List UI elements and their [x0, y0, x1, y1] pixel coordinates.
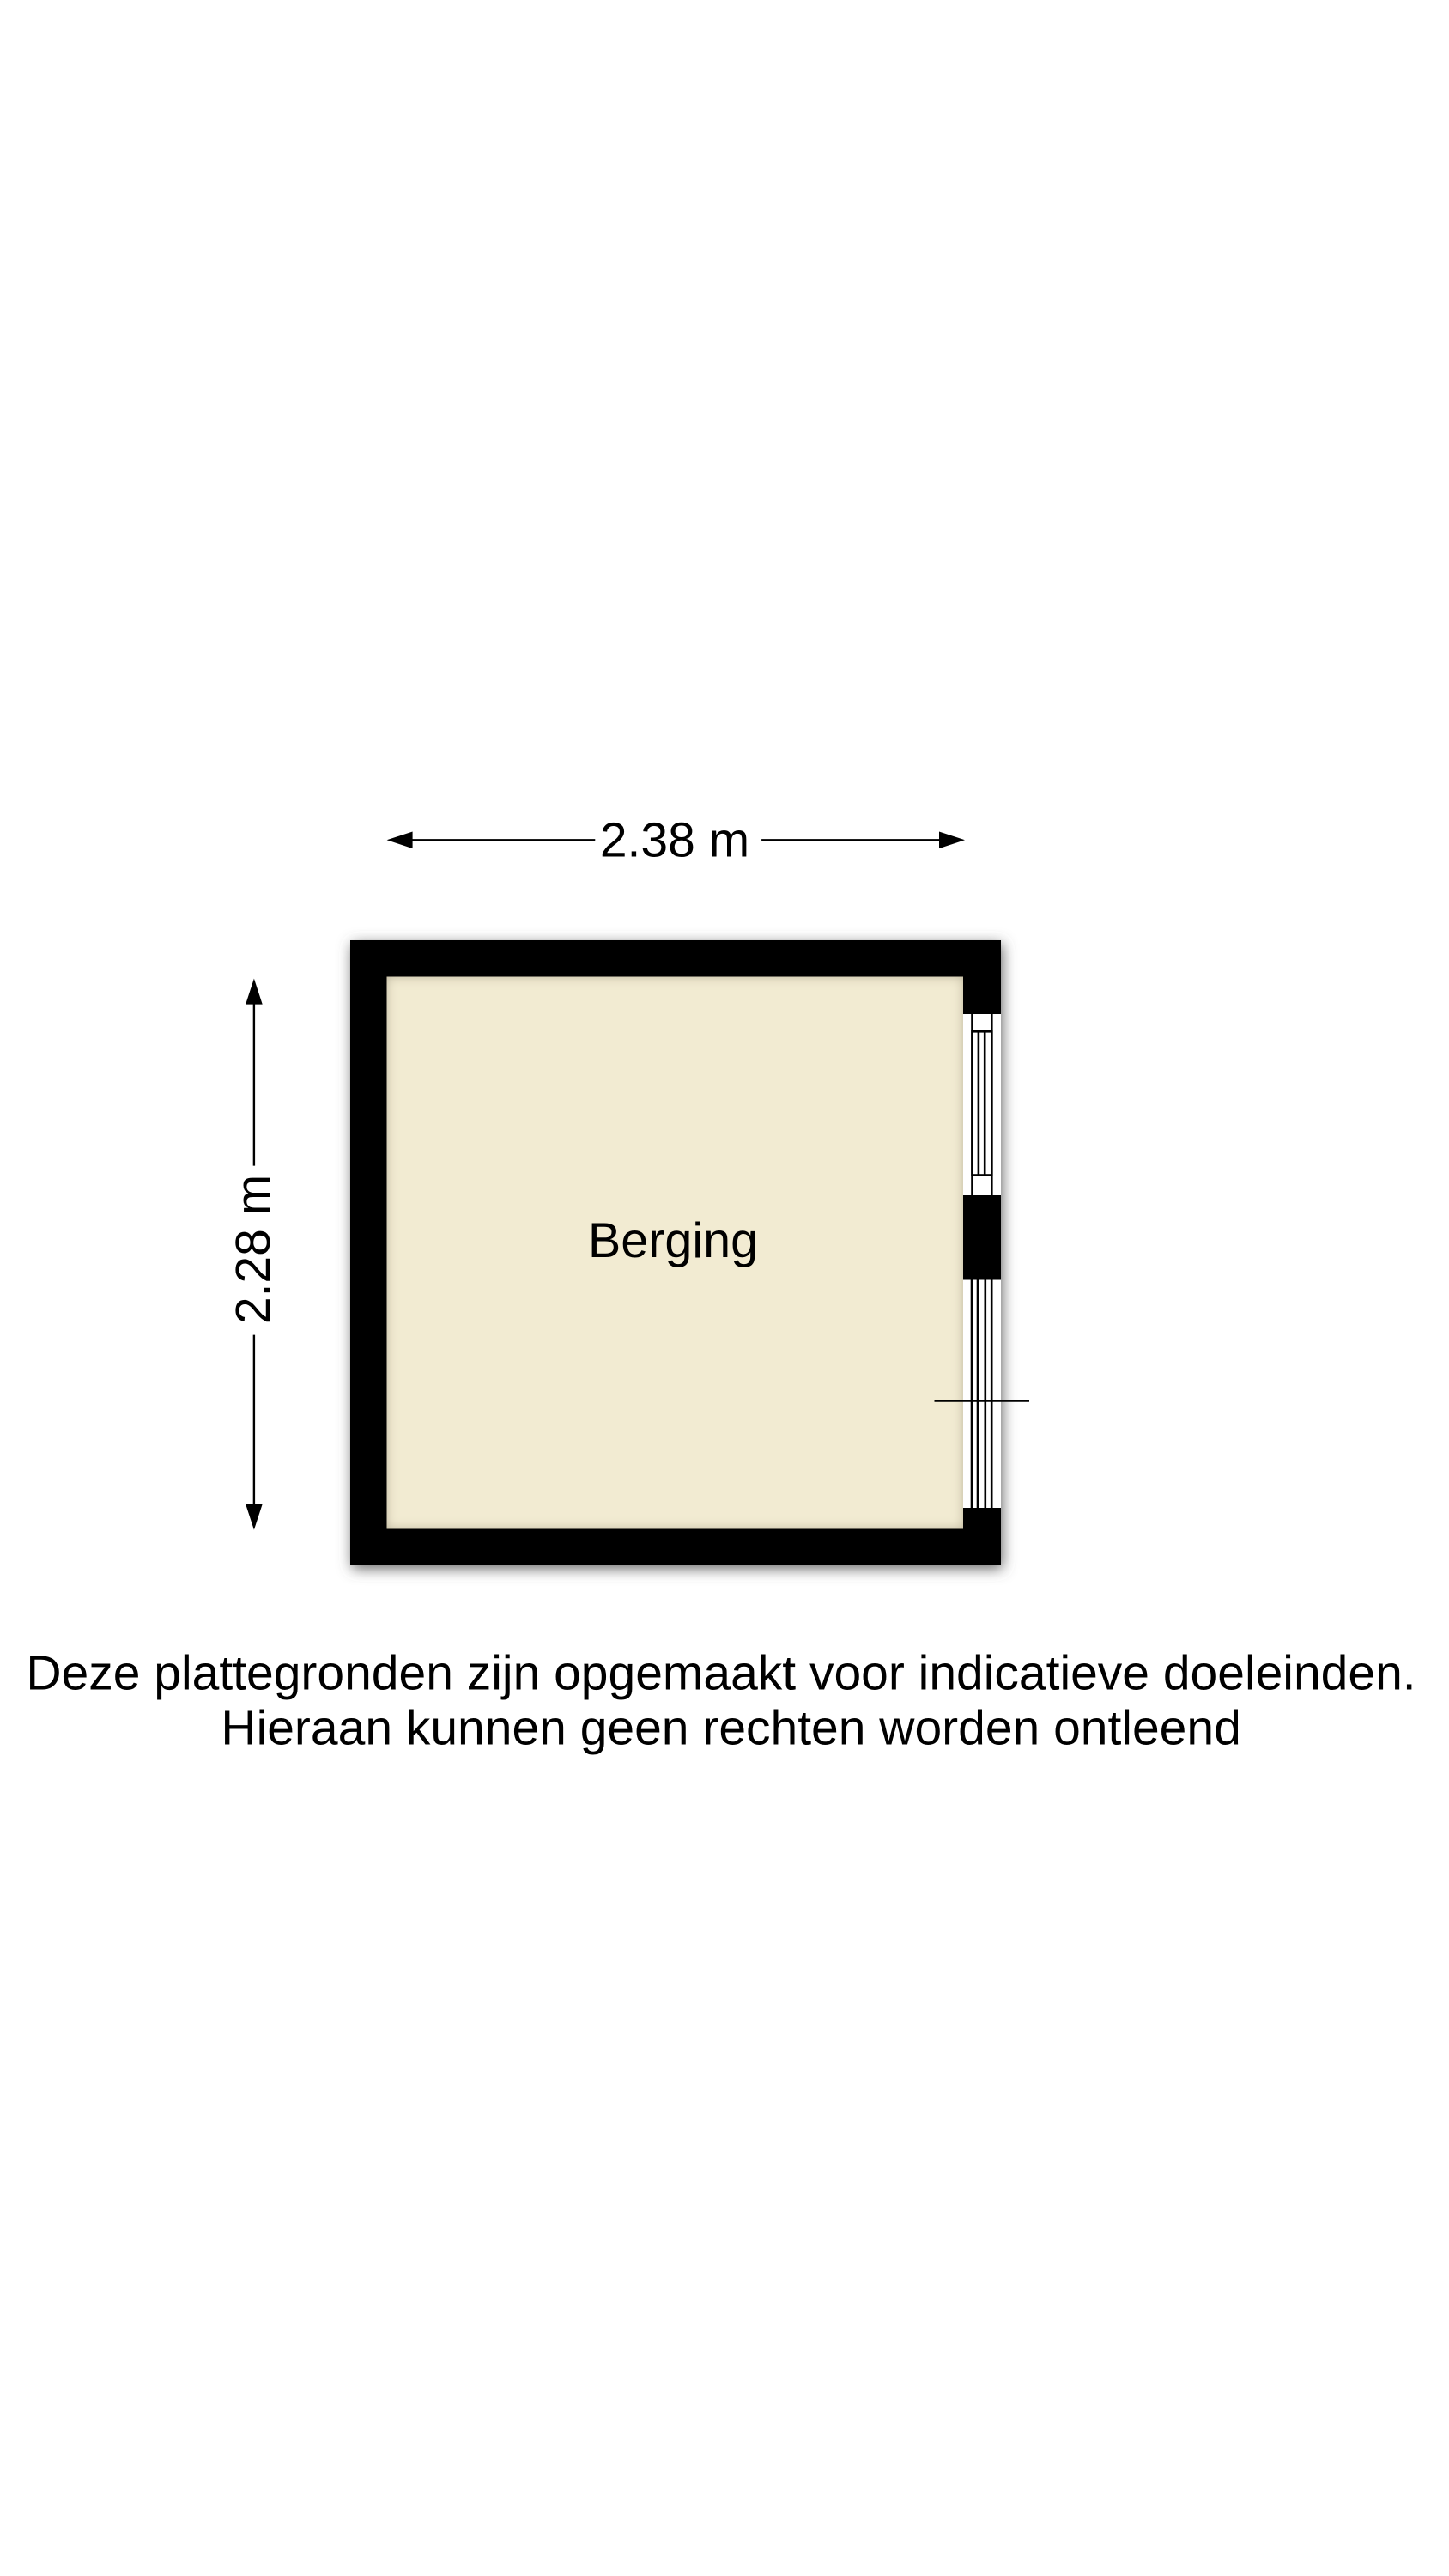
svg-text:Berging: Berging — [588, 1213, 758, 1268]
svg-text:Hieraan kunnen geen rechten wo: Hieraan kunnen geen rechten worden ontle… — [221, 1701, 1240, 1756]
svg-text:2.28 m: 2.28 m — [226, 1175, 281, 1324]
svg-text:2.38 m: 2.38 m — [600, 813, 749, 868]
svg-text:Deze plattegronden zijn opgema: Deze plattegronden zijn opgemaakt voor i… — [26, 1645, 1416, 1700]
